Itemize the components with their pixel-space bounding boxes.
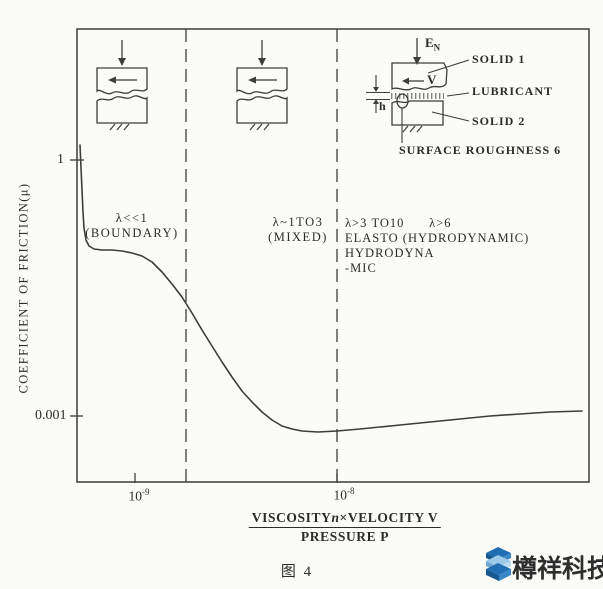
y-axis-title: COEFFICIENT OF FRICTION(μ) xyxy=(17,183,32,394)
velocity-label: V xyxy=(427,72,436,88)
x-axis-title: VISCOSITYn×VELOCITY V PRESSURE P xyxy=(249,510,441,545)
mixed-name: (MIXED) xyxy=(252,230,344,245)
lubricant-label: LUBRICANT xyxy=(472,84,553,99)
load-arrowhead xyxy=(118,58,126,66)
y-tick-label-1: 1 xyxy=(57,152,64,168)
load-arrowhead xyxy=(413,57,421,65)
solid1-label: SOLID 1 xyxy=(472,52,525,67)
x-tick1-base: 10 xyxy=(129,489,143,504)
figure-caption: 图 4 xyxy=(281,560,313,581)
solid2-label: SOLID 2 xyxy=(472,114,525,129)
ground-hatching xyxy=(110,124,129,130)
lower-block xyxy=(97,96,147,123)
x-tick2-exponent: -8 xyxy=(347,486,355,496)
inset-mixed-contact xyxy=(237,40,287,130)
sliding-arrowhead xyxy=(108,77,116,84)
x-tick-label-1e-9: 10-9 xyxy=(129,487,150,505)
upper-block xyxy=(97,68,147,94)
load-subscript: N xyxy=(434,43,441,53)
inset-boundary-contact xyxy=(97,40,147,130)
x-axis-numerator: VISCOSITYn×VELOCITY V xyxy=(249,510,441,528)
inset-hydrodynamic-contact xyxy=(366,38,469,143)
watermark-logo-icon xyxy=(486,547,511,581)
ground-hatching xyxy=(403,126,422,132)
boundary-lambda: λ<<1 xyxy=(82,211,182,226)
hydro-name-2: HYDRODYNA xyxy=(345,246,529,261)
figure-stribeck-curve: COEFFICIENT OF FRICTION(μ) 1 0.001 10-9 … xyxy=(0,0,603,589)
region-label-mixed: λ~1TO3 (MIXED) xyxy=(252,215,344,245)
mixed-lambda: λ~1TO3 xyxy=(252,215,344,230)
region-label-hydrodynamic: λ>3 TO10 λ>6 ELASTO (HYDRODYNAMIC) HYDRO… xyxy=(345,216,529,276)
solid1-block xyxy=(392,63,447,90)
x-tick2-base: 10 xyxy=(334,488,348,503)
numerator-velocity: ×VELOCITY V xyxy=(340,510,439,525)
numerator-eta: n xyxy=(331,510,339,525)
axis-ticks xyxy=(70,160,337,483)
region-label-boundary: λ<<1 (BOUNDARY) xyxy=(82,211,182,241)
boundary-name: (BOUNDARY) xyxy=(82,226,182,241)
numerator-viscosity: VISCOSITY xyxy=(252,510,332,525)
film-thickness-dimension xyxy=(366,75,390,113)
normal-load-label: EN xyxy=(425,35,440,53)
watermark-text: 樽祥科技 xyxy=(512,549,603,585)
hydro-name-3: -MIC xyxy=(345,261,529,276)
x-axis-denominator: PRESSURE P xyxy=(249,528,441,545)
load-symbol: E xyxy=(425,35,434,50)
hydro-lambda: λ>3 TO10 λ>6 xyxy=(345,216,529,231)
surface-roughness-label: SURFACE ROUGHNESS 6 xyxy=(399,143,561,158)
stribeck-curve xyxy=(80,145,582,432)
asperity-contact-circle xyxy=(397,94,408,108)
y-tick-label-0.001: 0.001 xyxy=(35,408,67,424)
velocity-arrowhead xyxy=(402,78,409,85)
x-tick1-exponent: -9 xyxy=(142,487,150,497)
x-tick-label-1e-8: 10-8 xyxy=(334,486,355,504)
film-thickness-label: h xyxy=(379,99,386,114)
hydro-name-1: ELASTO (HYDRODYNAMIC) xyxy=(345,231,529,246)
